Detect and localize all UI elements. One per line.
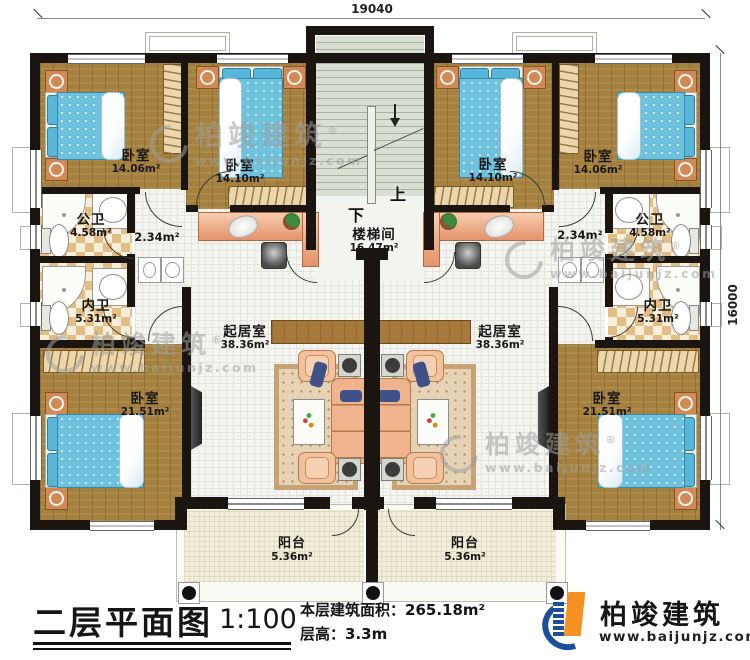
- watermark-text: 柏竣建筑® www.baijunjz.com: [91, 332, 259, 375]
- watermark: 柏竣建筑® www.baijunjz.com: [46, 332, 259, 375]
- title-underline-2: [33, 648, 291, 650]
- wall-bedroom2-bottom-a: [186, 205, 198, 212]
- watermark-logo-icon: [38, 327, 92, 381]
- bay-canopy-left: [145, 32, 230, 55]
- floor-height-value: 3.3m: [345, 625, 387, 643]
- side-table: [381, 354, 404, 377]
- floor-height-label: 层高：: [300, 625, 345, 643]
- wall-living-south-l2: [304, 497, 330, 509]
- wall-bedroom-br-top: [595, 340, 707, 348]
- wall-bedroom-br-south-a: [553, 520, 586, 530]
- wall-bedroom2-bottom-b: [230, 205, 306, 212]
- room-label-balcony-right: 阳台 5.36m²: [415, 537, 515, 563]
- plant-icon: [440, 213, 457, 230]
- wall-center-balcony: [366, 510, 378, 584]
- person-figure: [340, 390, 362, 402]
- window-living-left: [228, 498, 304, 510]
- room-name: 内卫: [608, 299, 708, 314]
- wall-living-south-r2: [512, 497, 563, 509]
- room-name: 公卫: [600, 213, 700, 228]
- wall-stair-bump-top: [306, 26, 434, 35]
- watermark-reg: ®: [211, 334, 227, 347]
- room-area: 38.36m²: [450, 340, 550, 352]
- wall-center-body: [364, 256, 380, 510]
- room-name: 卧室: [95, 392, 195, 407]
- room-name: 楼梯间: [324, 228, 424, 243]
- watermark-url: www.baijunjz.com: [195, 153, 363, 168]
- room-label-living-right: 起居室 38.36m²: [450, 325, 550, 352]
- watermark-brand: 柏竣建筑: [91, 330, 211, 359]
- wall-stairwell-right: [424, 53, 434, 250]
- watermark-url: www.baijunjz.com: [550, 266, 718, 281]
- dimension-tick: [701, 9, 710, 18]
- room-area: 2.34m²: [117, 231, 197, 244]
- window-bottom-left: [90, 521, 154, 531]
- window-right-4: [700, 416, 712, 480]
- wall-bedroom-bl-south-b: [154, 520, 187, 530]
- floor-area-value: 265.18m²: [405, 601, 485, 619]
- room-area: 5.36m²: [415, 552, 515, 564]
- nightstand: [45, 392, 68, 415]
- wall-bedroom1-bottom: [33, 187, 140, 194]
- room-label-bedroom-bottom-left: 卧室 21.51m²: [95, 392, 195, 419]
- watermark-logo-icon: [432, 427, 486, 481]
- room-area: 21.51m²: [557, 407, 657, 419]
- floor-area-line: 本层建筑面积：265.18m²: [300, 599, 485, 620]
- wall-living-south-l3: [352, 497, 364, 509]
- watermark-brand: 柏竣建筑: [550, 236, 670, 265]
- plant-icon: [283, 213, 300, 230]
- armchair: [406, 452, 444, 484]
- room-area: 5.31m²: [608, 314, 708, 326]
- room-area: 14.10m²: [443, 173, 543, 185]
- room-area: 14.10m²: [190, 174, 290, 186]
- side-table: [381, 458, 404, 481]
- side-table: [338, 354, 361, 377]
- wall-living-south-l1: [177, 497, 228, 509]
- nightstand: [674, 70, 697, 93]
- wall-bedroom4-bottom: [600, 187, 707, 194]
- stair-down-label: 下: [348, 202, 364, 226]
- watermark-text: 柏竣建筑® www.baijunjz.com: [195, 122, 363, 168]
- nightstand: [196, 66, 219, 89]
- room-name: 公卫: [41, 213, 141, 228]
- wardrobe-bottom-right: [597, 350, 699, 373]
- watermark: 柏竣建筑® www.baijunjz.com: [150, 122, 363, 168]
- room-label-bedroom-bottom-right: 卧室 21.51m²: [557, 392, 657, 419]
- stair-direction-line: [394, 104, 396, 118]
- watermark: 柏竣建筑® www.baijunjz.com: [440, 432, 653, 475]
- side-table: [338, 458, 361, 481]
- room-label-balcony-left: 阳台 5.36m²: [242, 537, 342, 563]
- company-logo-icon: [540, 590, 594, 648]
- window-left-3: [30, 302, 42, 326]
- window-ledge-left-lower: [12, 413, 32, 485]
- title-underline-1: [33, 642, 291, 645]
- watermark-text: 柏竣建筑® www.baijunjz.com: [485, 432, 653, 475]
- person-figure: [378, 390, 400, 402]
- watermark-logo-icon: [497, 233, 551, 287]
- wall-bedroom-br-south-b: [650, 520, 710, 530]
- nightstand: [45, 70, 68, 93]
- watermark-brand: 柏竣建筑: [485, 430, 605, 459]
- dimension-line-right: [720, 53, 721, 530]
- room-label-bedroom-top-right: 卧室 14.06m²: [548, 150, 648, 177]
- stair-handrail: [367, 106, 376, 204]
- wall-living-south-r1: [414, 497, 436, 509]
- wall-bath-left-mid: [33, 256, 135, 263]
- washer-icon: [138, 257, 161, 283]
- watermark-reg: ®: [670, 240, 686, 253]
- desk-chair: [261, 242, 287, 269]
- nightstand: [45, 487, 68, 510]
- wall-bedroom3-bottom-a: [434, 205, 510, 212]
- window-top-2: [217, 54, 288, 64]
- coffee-table: [293, 399, 325, 445]
- room-name: 起居室: [450, 325, 550, 340]
- room-area: 5.31m²: [46, 314, 146, 326]
- nightstand: [283, 66, 306, 89]
- window-bottom-right: [586, 521, 650, 531]
- watermark: 柏竣建筑® www.baijunjz.com: [505, 238, 718, 281]
- company-url: www.baijunjz.com: [599, 629, 750, 645]
- bay-canopy-right: [512, 32, 597, 55]
- floor-area-label: 本层建筑面积：: [300, 601, 405, 619]
- nightstand: [674, 392, 697, 415]
- dimension-right-value: 16000: [726, 275, 740, 335]
- wall-bedroom-bl-south-a: [30, 520, 90, 530]
- room-name: 阳台: [242, 537, 342, 552]
- stair-direction-arrow-icon: [390, 118, 400, 127]
- window-top-3: [452, 54, 523, 64]
- watermark-text: 柏竣建筑® www.baijunjz.com: [550, 238, 718, 281]
- armchair: [298, 452, 336, 484]
- window-right-1: [700, 150, 712, 208]
- dimension-line-top: [37, 18, 705, 19]
- nightstand: [523, 66, 546, 89]
- nightstand: [436, 66, 459, 89]
- nightstand: [45, 158, 68, 181]
- room-name: 内卫: [46, 299, 146, 314]
- bay-canopy-left-inner: [149, 36, 226, 51]
- vanity-basin-icon: [161, 257, 184, 283]
- watermark-reg: ®: [327, 125, 343, 138]
- stair-up-label: 上: [390, 181, 406, 205]
- nightstand: [674, 487, 697, 510]
- window-living-right: [436, 498, 512, 510]
- bay-canopy-right-inner: [516, 36, 593, 51]
- floor-height-line: 层高：3.3m: [300, 623, 387, 644]
- bed-sheet-fold: [119, 414, 144, 488]
- plan-scale: 1:100: [219, 604, 297, 635]
- room-name: 卧室: [548, 150, 648, 165]
- watermark-logo-icon: [142, 117, 196, 171]
- window-left-1: [30, 150, 42, 208]
- room-name: 阳台: [415, 537, 515, 552]
- company-name: 柏竣建筑: [600, 593, 724, 632]
- watermark-url: www.baijunjz.com: [485, 460, 653, 475]
- logo-building-blue-icon: [553, 602, 564, 636]
- dimension-top-value: 19040: [332, 2, 412, 16]
- room-area: 16.47m²: [324, 243, 424, 255]
- floor-plan-canvas: 卧室 14.06m² 卧室 14.10m² 卧室 14.10m² 卧室 14.0…: [0, 0, 750, 660]
- window-top-1: [68, 54, 145, 64]
- room-label-hall-left: 2.34m²: [117, 231, 197, 244]
- watermark-reg: ®: [605, 434, 621, 447]
- room-name: 卧室: [443, 158, 543, 173]
- dimension-tick: [33, 9, 42, 18]
- window-ledge-left-upper: [12, 147, 32, 213]
- window-top-4: [595, 54, 672, 64]
- wall-bedroom3-bottom-b: [542, 205, 554, 212]
- wardrobe-top-right: [559, 64, 579, 154]
- room-label-stairwell: 楼梯间 16.47m²: [324, 228, 424, 255]
- room-area: 14.06m²: [548, 165, 648, 177]
- watermark-url: www.baijunjz.com: [91, 360, 259, 375]
- plan-title: 二层平面图: [33, 596, 213, 644]
- room-label-inner-bath-left: 内卫 5.31m²: [46, 299, 146, 326]
- room-name: 卧室: [557, 392, 657, 407]
- desk-chair: [455, 242, 481, 269]
- nightstand: [674, 158, 697, 181]
- room-area: 21.51m²: [95, 407, 195, 419]
- room-label-inner-bath-right: 内卫 5.31m²: [608, 299, 708, 326]
- window-left-4: [30, 416, 42, 480]
- room-label-bedroom-top-right2: 卧室 14.10m²: [443, 158, 543, 185]
- watermark-brand: 柏竣建筑: [195, 119, 327, 152]
- room-area: 5.36m²: [242, 552, 342, 564]
